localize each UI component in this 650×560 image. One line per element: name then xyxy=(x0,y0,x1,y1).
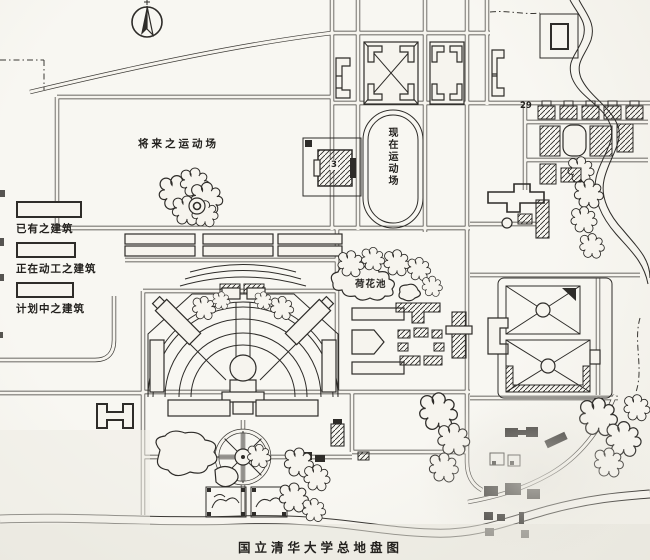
label-block-number-29: 29 xyxy=(520,101,532,111)
label-lotus-pond: 荷花池 xyxy=(355,276,387,290)
compass-north-icon xyxy=(132,0,162,37)
old-campus-cluster xyxy=(352,303,472,374)
legend-swatch-planned xyxy=(16,282,74,298)
lotus-pond xyxy=(331,247,442,300)
row-buildings xyxy=(125,234,342,256)
legend-swatch-existing xyxy=(16,201,82,218)
amphitheater-complex xyxy=(148,288,338,416)
legend-label-existing: 已有之建筑 xyxy=(16,221,126,236)
legend-label-planned: 计划中之建筑 xyxy=(16,301,126,316)
legend-label-under-construction: 正在动工之建筑 xyxy=(16,261,126,276)
map-title: 国立清华大学总地盘图 xyxy=(238,537,403,556)
northeast-courtyard xyxy=(540,14,578,58)
field-grove xyxy=(159,168,222,227)
east-courtyard-complex xyxy=(488,278,612,398)
west-h-building xyxy=(97,404,133,428)
north-dorm-courts xyxy=(336,42,504,104)
garden-plots xyxy=(206,487,287,517)
scan-margin-marks xyxy=(0,190,5,338)
campus-map: 已有之建筑 正在动工之建筑 计划中之建筑 将来之运动场 现在运动场 荷花池 29… xyxy=(0,0,650,560)
label-current-sports-field: 现在运动场 xyxy=(384,127,399,187)
legend-swatch-under-construction xyxy=(16,242,76,258)
legend: 已有之建筑 正在动工之建筑 计划中之建筑 xyxy=(16,201,126,322)
label-future-sports-field: 将来之运动场 xyxy=(138,136,219,151)
label-gym-number-3: 3 xyxy=(330,160,338,170)
